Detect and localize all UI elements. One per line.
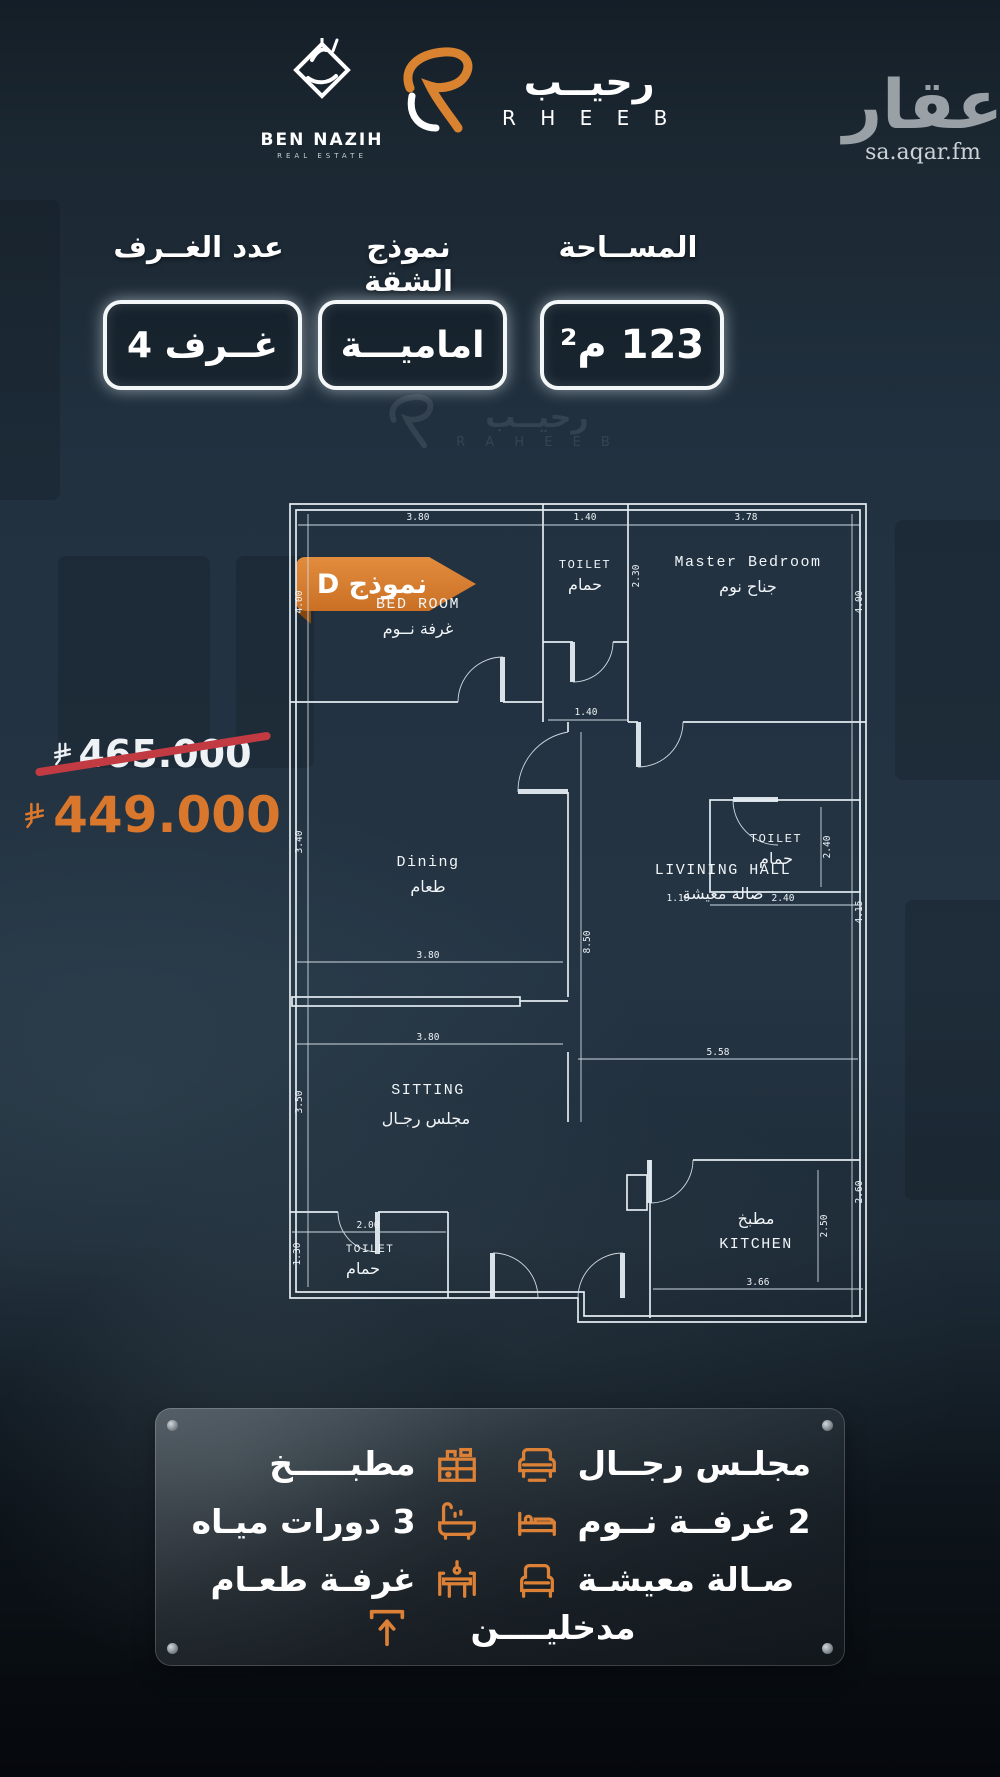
riyal-symbol-icon <box>25 802 44 829</box>
legend-label: غرفـة طعـام <box>189 1560 416 1599</box>
watermark-latin: R A H E E B <box>456 435 618 450</box>
dim-label: 3.50 <box>294 1090 305 1113</box>
legend-label: مدخليــــن <box>470 1608 635 1647</box>
dim-label: 4.00 <box>854 590 865 613</box>
screw-icon <box>822 1420 833 1431</box>
legend-grid: مطبـــــخ <box>189 1434 811 1608</box>
area-value-box: 123 م² <box>540 300 724 390</box>
outer-wall <box>290 504 866 1322</box>
room-label-toilet-mid-en: TOILET <box>750 832 802 846</box>
legend-label: 2 غرفــة نــوم <box>578 1502 811 1541</box>
floor-plan: 3.80 1.40 3.78 4.00 2.30 4.00 1.40 1.18 … <box>278 492 878 1328</box>
new-price-value: 449.000 <box>53 786 281 844</box>
room-label-dining-ar: طعام <box>410 877 445 896</box>
legend-label: مجلـس رجــال <box>578 1444 811 1483</box>
interior-walls <box>290 504 866 1318</box>
dimension-lines <box>292 514 863 1318</box>
door-symbols <box>338 642 778 1298</box>
bg-window-rect <box>895 520 1000 780</box>
bath-icon <box>434 1498 480 1544</box>
room-label-toilet-bottom-en: TOILET <box>346 1244 395 1256</box>
area-header: المســاحة <box>540 230 716 264</box>
ben-nazih-logo: BEN NAZIH REAL ESTATE <box>252 38 392 160</box>
legend-label: 3 دورات ميـاه <box>189 1502 416 1541</box>
outer-wall-inner <box>296 510 860 1316</box>
dim-label: 3.66 <box>747 1277 770 1288</box>
dim-label: 2.50 <box>819 1214 830 1237</box>
watermark-arabic: رحيــب <box>485 400 588 435</box>
legend-item-kitchen: مطبـــــخ <box>189 1440 480 1486</box>
dim-label: 2.60 <box>854 1180 865 1203</box>
entrance-icon <box>364 1604 410 1650</box>
ben-nazih-logo-mark <box>286 38 358 122</box>
dim-label: 1.30 <box>292 1242 303 1265</box>
dim-label: 1.40 <box>575 707 598 718</box>
ben-nazih-name: BEN NAZIH <box>252 130 392 150</box>
poster-page: BEN NAZIH REAL ESTATE رحيــب R H E E B ع… <box>0 0 1000 1777</box>
rheeb-logo: رحيــب R H E E B <box>392 44 676 148</box>
room-label-dining-en: Dining <box>396 854 459 871</box>
legend-item-dining: غرفـة طعـام <box>189 1556 480 1602</box>
rooms-value-box: 4 غــرف <box>103 300 302 390</box>
sofa-icon <box>514 1440 560 1486</box>
aqar-arabic-wordmark: عقار <box>838 72 1000 140</box>
screw-icon <box>167 1420 178 1431</box>
legend-item-majlis: مجلـس رجــال <box>514 1440 811 1486</box>
dim-label: 3.80 <box>407 512 430 523</box>
rheeb-watermark: رحيــب R A H E E B <box>0 392 1000 458</box>
legend-panel: مطبـــــخ <box>155 1408 845 1666</box>
legend-item-bathrooms: 3 دورات ميـاه <box>189 1498 480 1544</box>
room-label-hall-en: LIVINING HALL <box>655 862 792 879</box>
dimension-labels: 3.80 1.40 3.78 4.00 2.30 4.00 1.40 1.18 … <box>292 512 865 1288</box>
room-label-toilet-bottom-ar: حمام <box>346 1259 380 1278</box>
dining-table-icon <box>434 1556 480 1602</box>
room-label-bedroom-ar: غرفة نــوم <box>383 619 454 639</box>
old-price: 465.000 <box>48 732 258 776</box>
dim-label: 2.30 <box>631 564 642 587</box>
dim-label: 3.40 <box>294 830 305 853</box>
dim-label: 3.78 <box>735 512 758 523</box>
rooms-header: عدد الغــرف <box>103 230 294 264</box>
rheeb-watermark-mark <box>382 392 446 458</box>
dim-label: 2.00 <box>357 1220 380 1231</box>
room-labels: BED ROOM غرفة نــوم TOILET حمام Master B… <box>346 554 822 1278</box>
dim-label: 1.40 <box>574 512 597 523</box>
price-block: 465.000 449.000 <box>48 732 258 844</box>
room-label-master-en: Master Bedroom <box>674 554 821 571</box>
dim-label: 5.58 <box>707 1047 730 1058</box>
kitchen-icon <box>434 1440 480 1486</box>
bed-icon <box>514 1498 560 1544</box>
floor-plan-drawing: 3.80 1.40 3.78 4.00 2.30 4.00 1.40 1.18 … <box>278 492 878 1328</box>
room-label-bedroom-en: BED ROOM <box>376 596 460 613</box>
dim-label: 3.80 <box>417 950 440 961</box>
room-label-master-ar: جناح نوم <box>719 577 777 597</box>
legend-item-bedrooms: 2 غرفــة نــوم <box>514 1498 811 1544</box>
dim-label: 8.50 <box>582 930 593 953</box>
dim-label: 3.80 <box>417 1032 440 1043</box>
rheeb-arabic-name: رحيــب <box>524 62 655 104</box>
dim-label: 4.00 <box>294 590 305 613</box>
room-label-hall-ar: صالة معيشة <box>683 884 764 903</box>
room-label-sitting-ar: مجلس رجـال <box>382 1109 470 1129</box>
room-label-toilet-top-en: TOILET <box>559 558 611 572</box>
new-price: 449.000 <box>48 786 258 844</box>
legend-label: مطبـــــخ <box>189 1444 416 1483</box>
room-label-kitchen-en: KITCHEN <box>719 1236 793 1253</box>
model-value-box: اماميـــة <box>318 300 507 390</box>
rheeb-latin-name: R H E E B <box>502 106 676 130</box>
legend-entrances-row: مدخليــــن <box>155 1604 845 1650</box>
legend-label: صـالة معيشـة <box>578 1560 811 1599</box>
model-header: نموذج الشقة <box>318 230 499 298</box>
rheeb-logo-mark <box>392 44 492 148</box>
room-label-kitchen-ar: مطبخ <box>738 1209 775 1229</box>
legend-item-living: صـالة معيشـة <box>514 1556 811 1602</box>
room-label-sitting-en: SITTING <box>391 1082 465 1099</box>
aqar-logo: عقار sa.aqar.fm <box>838 72 1000 165</box>
bg-window-rect <box>905 900 1000 1200</box>
room-label-toilet-top-ar: حمام <box>568 575 602 594</box>
dim-label: 2.40 <box>772 893 795 904</box>
dim-label: 2.40 <box>822 835 833 858</box>
dim-label: 4.15 <box>854 901 865 924</box>
armchair-icon <box>514 1556 560 1602</box>
ben-nazih-tagline: REAL ESTATE <box>252 152 392 160</box>
